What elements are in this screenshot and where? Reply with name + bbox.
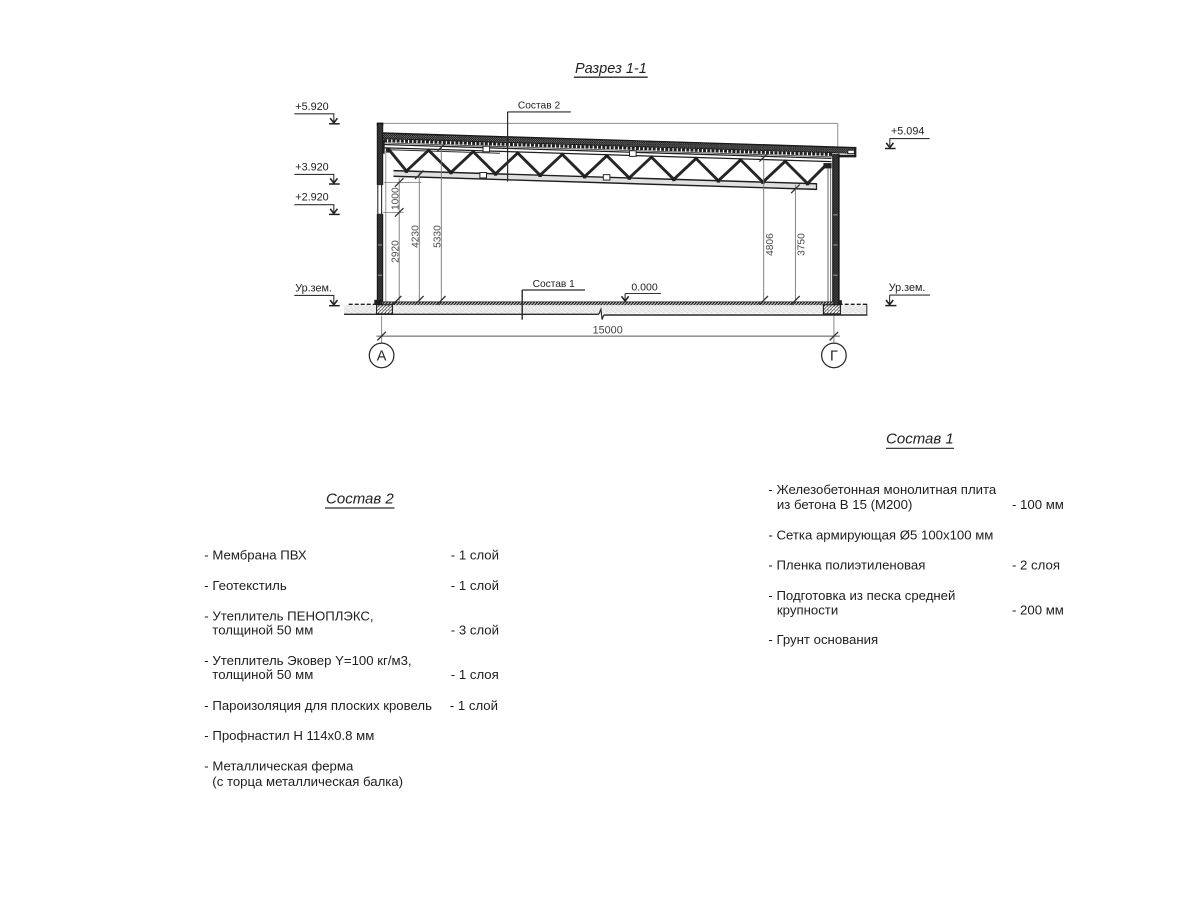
svg-text:- Металлическая ферма: - Металлическая ферма xyxy=(204,758,354,773)
svg-text:Ур.зем.: Ур.зем. xyxy=(889,282,926,294)
svg-text:- 3 слой: - 3 слой xyxy=(451,622,499,637)
svg-text:- Сетка армирующая Ø5 100х100: - Сетка армирующая Ø5 100х100 мм xyxy=(768,527,993,542)
svg-text:(с торца металлическая балка): (с торца металлическая балка) xyxy=(212,774,403,789)
svg-text:- Подготовка из песка средней: - Подготовка из песка средней xyxy=(768,588,955,603)
svg-text:- 200 мм: - 200 мм xyxy=(1012,603,1064,618)
svg-text:- 1 слой: - 1 слой xyxy=(450,698,498,713)
svg-text:- 2 слоя: - 2 слоя xyxy=(1012,557,1060,572)
svg-text:- 1 слоя: - 1 слоя xyxy=(451,667,499,682)
svg-text:+2.920: +2.920 xyxy=(295,192,328,204)
svg-text:Состав 1: Состав 1 xyxy=(533,279,576,290)
svg-text:- Профнастил Н 114х0.8 мм: - Профнастил Н 114х0.8 мм xyxy=(204,728,374,743)
svg-text:- Геотекстиль: - Геотекстиль xyxy=(204,578,287,593)
svg-text:4230: 4230 xyxy=(411,225,422,248)
svg-text:А: А xyxy=(377,349,387,365)
svg-text:- Мембрана ПВХ: - Мембрана ПВХ xyxy=(204,548,307,563)
svg-text:15000: 15000 xyxy=(593,324,623,336)
svg-text:Разрез 1-1: Разрез 1-1 xyxy=(575,61,647,77)
svg-text:+3.920: +3.920 xyxy=(295,161,328,173)
svg-text:Состав 2: Состав 2 xyxy=(326,490,394,507)
svg-text:1000: 1000 xyxy=(391,187,402,210)
svg-text:+5.094: +5.094 xyxy=(891,126,924,138)
svg-text:5330: 5330 xyxy=(433,225,444,248)
svg-text:Г: Г xyxy=(830,349,838,365)
svg-text:2920: 2920 xyxy=(391,240,402,263)
svg-text:- Пленка полиэтиленовая: - Пленка полиэтиленовая xyxy=(768,557,925,572)
svg-text:- Утеплитель ПЕНОПЛЭКС,: - Утеплитель ПЕНОПЛЭКС, xyxy=(204,609,373,624)
svg-text:Ур.зем.: Ур.зем. xyxy=(295,282,332,294)
svg-text:- Грунт основания: - Грунт основания xyxy=(768,632,878,647)
svg-text:Состав 2: Состав 2 xyxy=(518,100,561,111)
svg-text:+5.920: +5.920 xyxy=(295,101,328,113)
svg-text:4806: 4806 xyxy=(765,233,776,256)
svg-text:- 1 слой: - 1 слой xyxy=(451,548,499,563)
svg-text:- 1 слой: - 1 слой xyxy=(451,578,499,593)
svg-text:- 100 мм: - 100 мм xyxy=(1012,497,1064,512)
svg-text:0.000: 0.000 xyxy=(631,281,657,293)
svg-text:3750: 3750 xyxy=(797,233,808,256)
svg-text:крупности: крупности xyxy=(777,603,838,618)
svg-text:- Пароизоляция для плоских кро: - Пароизоляция для плоских кровель xyxy=(204,698,432,713)
svg-text:- Утеплитель Эковер Y=100 кг/м: - Утеплитель Эковер Y=100 кг/м3, xyxy=(204,653,411,668)
svg-text:Состав 1: Состав 1 xyxy=(886,431,954,448)
svg-text:- Железобетонная монолитная п: - Железобетонная монолитная плита xyxy=(768,482,997,497)
svg-text:толщиной 50 мм: толщиной 50 мм xyxy=(212,622,313,637)
svg-text:толщиной 50 мм: толщиной 50 мм xyxy=(212,667,313,682)
svg-text:из бетона В 15 (М200): из бетона В 15 (М200) xyxy=(777,497,912,512)
